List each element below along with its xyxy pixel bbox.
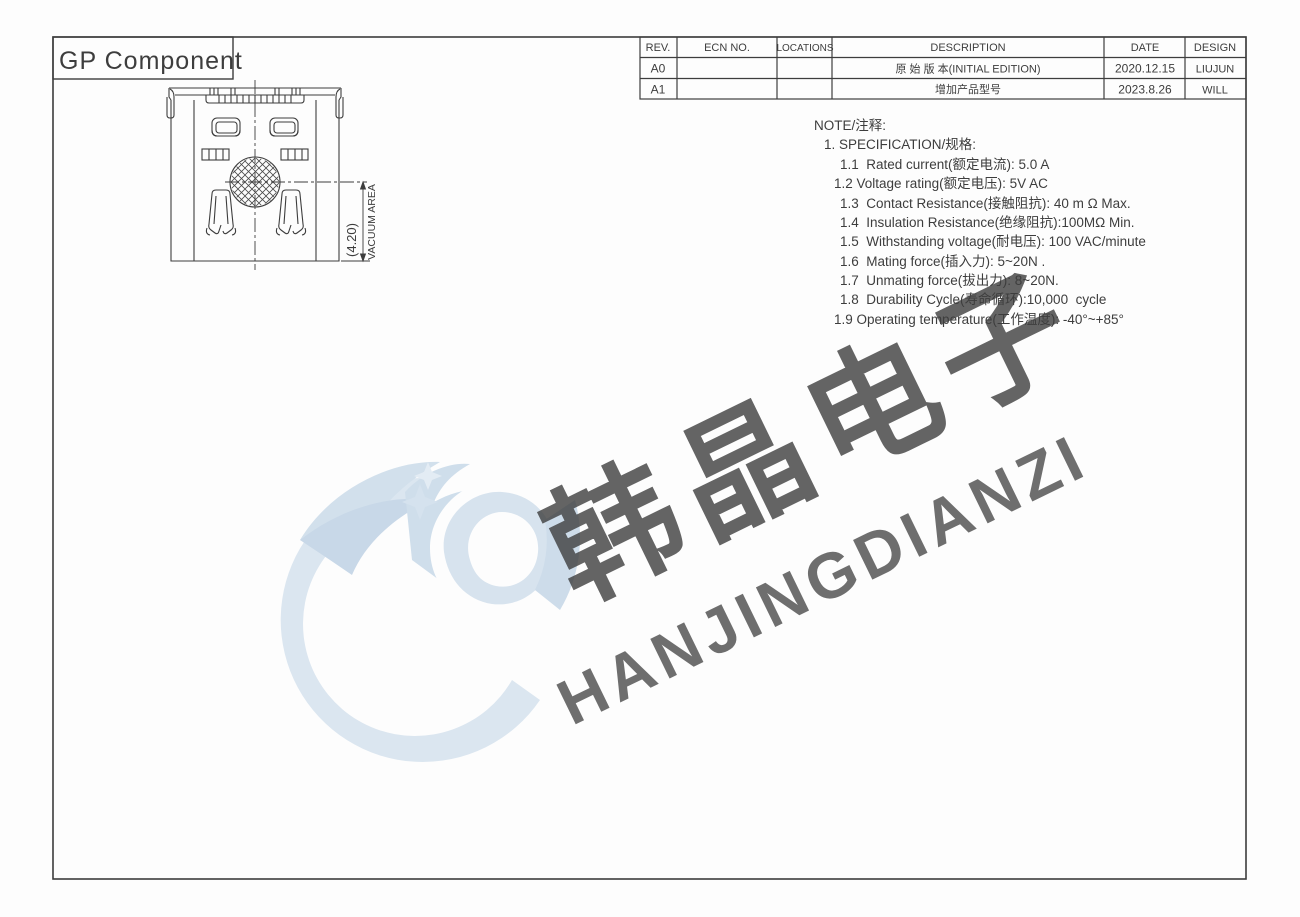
svg-text:(4.20): (4.20) [344, 223, 359, 257]
svg-text:1. SPECIFICATION/规格:: 1. SPECIFICATION/规格: [824, 137, 976, 152]
svg-text:DESIGN: DESIGN [1194, 42, 1236, 54]
svg-text:1.9 Operating temperature(工作温度: 1.9 Operating temperature(工作温度): -40°~+8… [834, 312, 1124, 327]
svg-text:原 始 版 本(INITIAL EDITION): 原 始 版 本(INITIAL EDITION) [895, 62, 1040, 76]
svg-text:NOTE/注释:: NOTE/注释: [814, 118, 886, 133]
svg-text:DATE: DATE [1131, 42, 1160, 54]
svg-text:1.1 Rated current(额定电流): 5.0: 1.1 Rated current(额定电流): 5.0 A [840, 157, 1049, 172]
svg-text:LOCATIONS: LOCATIONS [776, 43, 833, 54]
svg-text:增加产品型号: 增加产品型号 [935, 82, 1001, 96]
svg-text:DESCRIPTION: DESCRIPTION [930, 42, 1005, 54]
svg-text:1.2 Voltage rating(额定电压): 5V A: 1.2 Voltage rating(额定电压): 5V AC [834, 176, 1048, 191]
svg-text:1.7 Unmating force(拔出力): 8~20: 1.7 Unmating force(拔出力): 8~20N. [840, 273, 1059, 288]
svg-text:WILL: WILL [1202, 85, 1228, 97]
svg-text:1.4 Insulation Resistance(绝缘阻: 1.4 Insulation Resistance(绝缘阻抗):100MΩ Mi… [840, 215, 1134, 230]
svg-text:LIUJUN: LIUJUN [1196, 64, 1235, 76]
svg-text:REV.: REV. [646, 42, 671, 54]
svg-text:1.5 Withstanding voltage(耐电压): 1.5 Withstanding voltage(耐电压): 100 VAC/m… [840, 234, 1146, 249]
svg-text:1.8 Durability Cycle(寿命循环):10: 1.8 Durability Cycle(寿命循环):10,000 cycle [840, 291, 1106, 307]
svg-text:A0: A0 [651, 62, 666, 76]
svg-text:1.3 Contact Resistance(接触阻抗):: 1.3 Contact Resistance(接触阻抗): 40 m Ω Max… [840, 195, 1131, 211]
svg-text:2020.12.15: 2020.12.15 [1115, 62, 1175, 76]
svg-text:VACUUM AREA: VACUUM AREA [366, 184, 378, 260]
svg-text:ECN NO.: ECN NO. [704, 42, 750, 54]
svg-text:1.6 Mating force(插入力): 5~20N: 1.6 Mating force(插入力): 5~20N . [840, 254, 1045, 269]
svg-text:A1: A1 [651, 83, 666, 97]
svg-text:GP Component: GP Component [59, 47, 243, 75]
svg-text:2023.8.26: 2023.8.26 [1118, 83, 1172, 97]
